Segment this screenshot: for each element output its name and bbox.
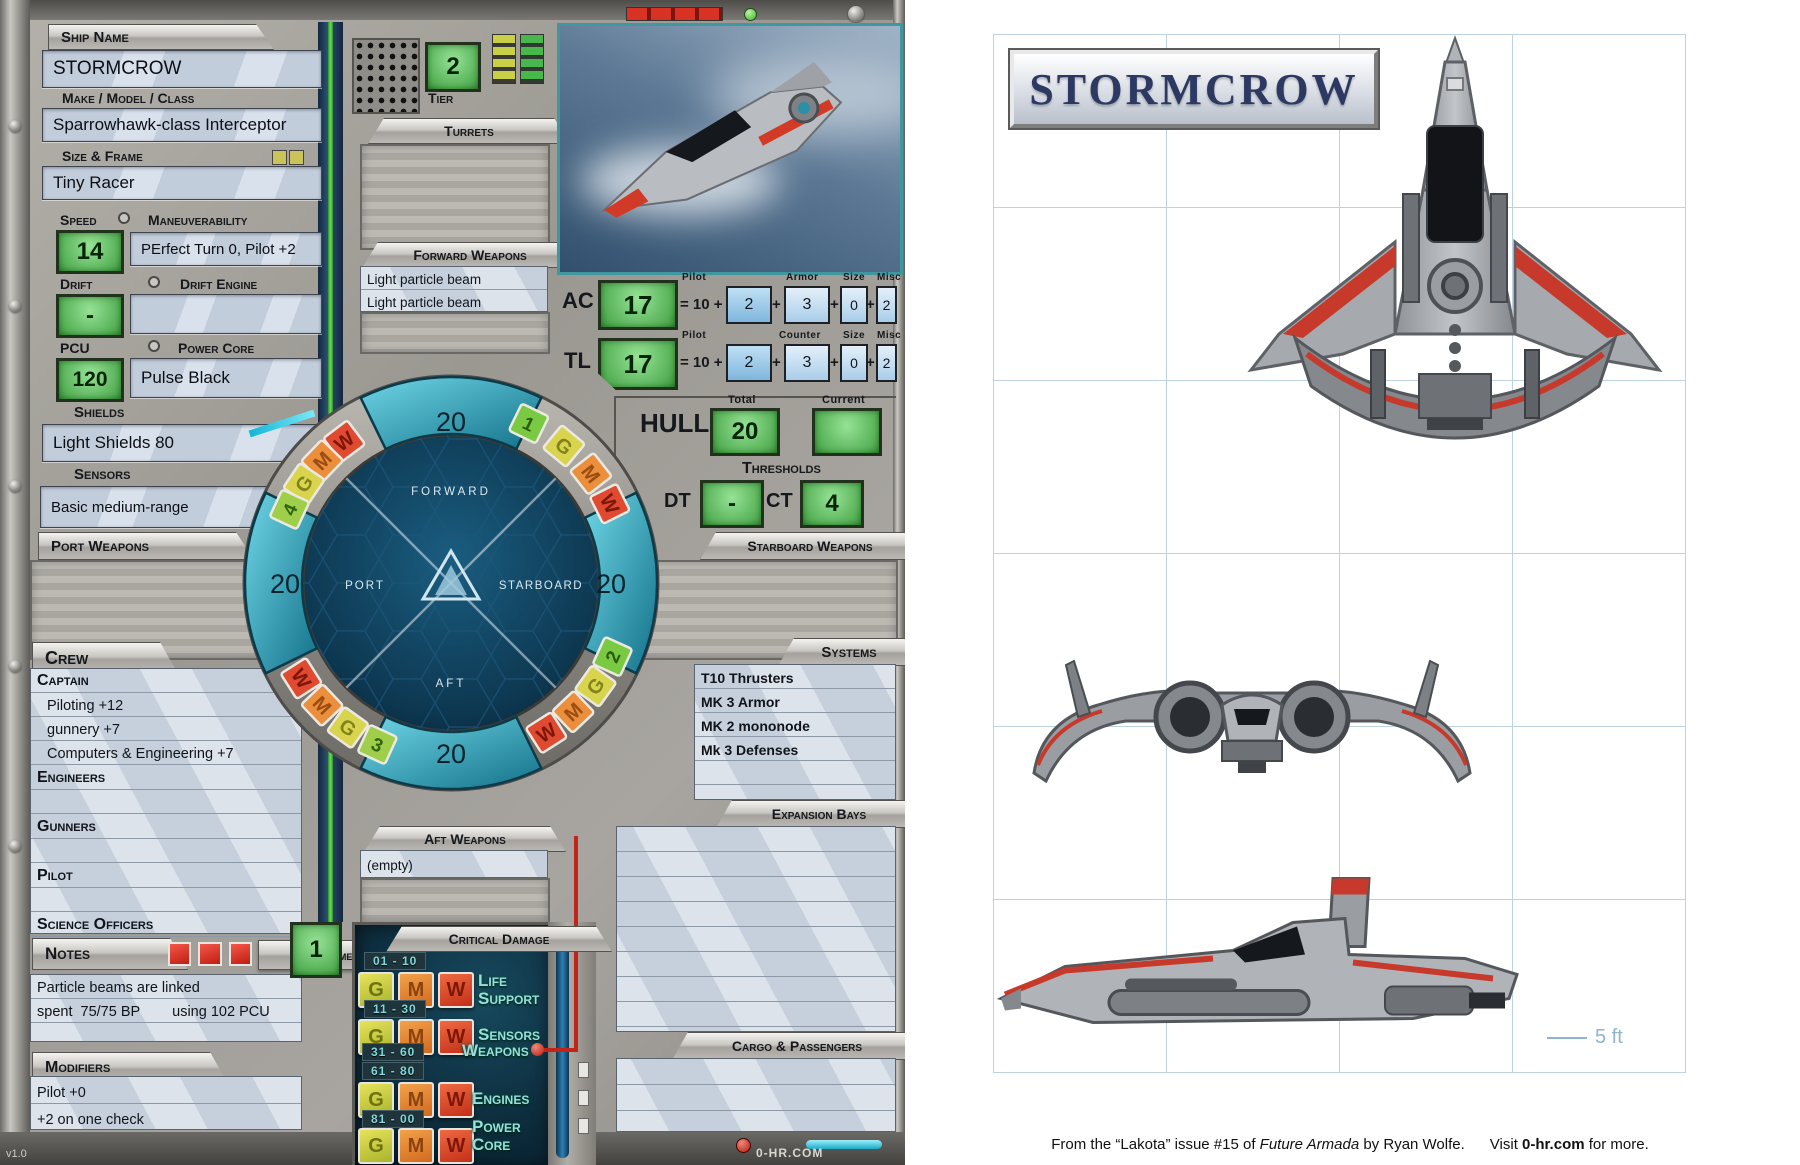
ac-misc-label: Misc (877, 272, 901, 283)
hull-total-box[interactable]: 20 (710, 408, 780, 456)
tl-pilot-label: Pilot (682, 330, 706, 341)
cargo-panel (616, 1058, 896, 1132)
notes-line[interactable]: spent 75/75 BP using 102 PCU (31, 999, 301, 1023)
m-damage-box[interactable]: M (398, 1128, 434, 1164)
drift-value-box[interactable]: - (56, 294, 124, 338)
bay-row[interactable] (617, 1002, 895, 1027)
crew-pilot-row[interactable]: Pilot (31, 863, 301, 888)
make-model-field[interactable]: Sparrowhawk-class Interceptor (42, 108, 322, 142)
ac-formula: = 10 + (680, 296, 723, 313)
footer-author: Ryan Wolfe. (1383, 1136, 1464, 1153)
aft-quadrant-label: AFT (436, 678, 467, 690)
blueprint-page: STORMCROW (905, 0, 1800, 1165)
drift-label: Drift (60, 276, 92, 292)
critical-range: 31 - 60 (362, 1043, 424, 1061)
system-entry[interactable]: MK 2 mononode (695, 713, 895, 737)
bay-row[interactable] (617, 877, 895, 902)
ac-label: AC (562, 288, 594, 314)
white-led-icon (578, 1062, 589, 1078)
maneuverability-field[interactable]: PErfect Turn 0, Pilot +2 (130, 232, 322, 266)
ac-value-box[interactable]: 17 (598, 280, 678, 330)
aft-weapons-panel[interactable] (360, 878, 550, 924)
forward-shield-value[interactable]: 20 (436, 407, 466, 437)
notes-status-squares (168, 942, 252, 966)
red-square-icon[interactable] (198, 942, 221, 966)
tl-misc-box[interactable]: 2 (876, 344, 897, 382)
aft-shield-value[interactable]: 20 (436, 739, 466, 769)
critical-power-core-chips: G M W (358, 1128, 474, 1164)
ship-side-view (993, 866, 1543, 1073)
critical-damage-header: Critical Damage (386, 926, 612, 952)
starboard-quadrant-label: STARBOARD (499, 580, 583, 592)
hull-current-box[interactable] (812, 408, 882, 456)
systems-panel: T10 Thrusters MK 3 Armor MK 2 mononode M… (694, 664, 896, 800)
white-led-icon (578, 1118, 589, 1134)
sensors-label: Sensors (74, 466, 130, 483)
critical-system-label: Life Support (478, 972, 548, 1008)
turrets-header: Turrets (368, 118, 570, 144)
notes-blank-line[interactable] (31, 1023, 301, 1046)
link-node-icon (118, 212, 130, 224)
ship-photo-render (578, 44, 878, 244)
ac-size-box[interactable]: 0 (840, 286, 868, 324)
make-model-label: Make / Model / Class (62, 90, 194, 106)
critical-range: 81 - 00 (362, 1110, 424, 1128)
ship-photo (557, 23, 903, 275)
drift-engine-field[interactable] (130, 294, 322, 334)
critical-system-label: Engines (472, 1090, 529, 1108)
critical-range: 11 - 30 (364, 1000, 426, 1018)
plus-sign: + (830, 296, 839, 313)
aft-weapon-entry[interactable]: (empty) (361, 851, 547, 875)
g-damage-box[interactable]: G (358, 1128, 394, 1164)
tl-counter-label: Counter (779, 330, 821, 341)
ship-record-sheet: 2 Tier Ship Name STORMCROW Make / Model … (0, 0, 905, 1165)
shields-label: Shields (74, 404, 124, 421)
speed-label: Speed (60, 212, 97, 228)
red-square-icon[interactable] (168, 942, 191, 966)
forward-weapons-header: Forward Weapons (362, 242, 578, 268)
cargo-row[interactable] (617, 1059, 895, 1085)
modifier-line[interactable]: +2 on one check (31, 1104, 301, 1130)
footer-series-title: Future Armada (1260, 1136, 1360, 1153)
modifier-line[interactable]: Pilot +0 (31, 1077, 301, 1104)
red-led-icon (736, 1138, 751, 1153)
expansion-bays-header: Expansion Bays (716, 800, 922, 828)
critical-range: 61 - 80 (362, 1062, 424, 1080)
indicator-slots-yellow (492, 34, 516, 84)
ship-top-view (1235, 34, 1675, 546)
pcu-value-box[interactable]: 120 (56, 358, 124, 402)
bolt-icon (9, 840, 21, 852)
bay-row[interactable] (617, 852, 895, 877)
round-button[interactable] (848, 6, 864, 22)
bolt-icon (9, 660, 21, 672)
tl-size-box[interactable]: 0 (840, 344, 868, 382)
ct-value-box[interactable]: 4 (800, 480, 864, 528)
ship-name-header: Ship Name (48, 24, 274, 50)
systems-header: Systems (778, 638, 920, 666)
ac-pilot-label: Pilot (682, 272, 706, 283)
arc-shield-diagram: 20 20 20 20 W M G 4 1 G M W W M G 3 W M … (211, 343, 691, 823)
tl-counter-box[interactable]: 3 (784, 344, 830, 382)
tl-size-label: Size (843, 330, 865, 341)
drift-engine-label: Drift Engine (180, 276, 257, 292)
notes-line[interactable]: Particle beams are linked (31, 975, 301, 999)
plus-sign: + (866, 354, 875, 371)
starboard-weapons-header: Starboard Weapons (700, 532, 920, 560)
port-shield-value[interactable]: 20 (270, 569, 300, 599)
bay-row[interactable] (617, 977, 895, 1002)
hull-current-label: Current (822, 394, 865, 406)
scale-label: 5 ft (1595, 1026, 1623, 1049)
size-frame-field[interactable]: Tiny Racer (42, 166, 322, 200)
cargo-header: Cargo & Passengers (672, 1032, 922, 1060)
weapons-pointer-dot (531, 1043, 544, 1056)
frame-pip-icon (289, 150, 304, 165)
port-quadrant-label: PORT (345, 580, 385, 592)
plus-sign: + (830, 354, 839, 371)
plus-sign: + (772, 354, 781, 371)
notes-header: Notes (32, 938, 188, 970)
critical-range: 01 - 10 (364, 952, 426, 970)
link-node-icon (148, 276, 160, 288)
weapons-connector-line (538, 1048, 578, 1052)
footer-site-link[interactable]: 0-hr.com (1522, 1136, 1585, 1153)
tier-value-box[interactable]: 2 (425, 42, 481, 92)
ac-armor-label: Armor (786, 272, 819, 283)
indicator-slots-green (520, 34, 544, 84)
thresholds-label: Thresholds (742, 460, 821, 478)
bay-row[interactable] (617, 902, 895, 927)
pcu-label: PCU (60, 340, 90, 356)
speed-value-box[interactable]: 14 (56, 230, 124, 274)
system-blank-entry[interactable] (695, 761, 895, 785)
brand-mark: 0-HR.COM (756, 1146, 823, 1160)
hull-total-label: Total (728, 394, 756, 406)
blue-pipe (556, 928, 569, 1158)
ac-misc-box[interactable]: 2 (876, 286, 897, 324)
crew-blank-row[interactable] (31, 888, 301, 912)
crew-blank-row[interactable] (31, 839, 301, 863)
ship-name-field[interactable]: STORMCROW (42, 50, 322, 88)
scale-tick-line (1547, 1037, 1587, 1039)
ac-pilot-box[interactable]: 2 (726, 286, 772, 324)
notes-panel: Particle beams are linked spent 75/75 BP… (30, 974, 302, 1042)
aft-weapons-header: Aft Weapons (364, 826, 566, 852)
cargo-row[interactable] (617, 1111, 895, 1136)
starboard-shield-value[interactable]: 20 (596, 569, 626, 599)
white-led-icon (578, 1090, 589, 1106)
system-entry[interactable]: Mk 3 Defenses (695, 737, 895, 761)
red-square-icon[interactable] (229, 942, 252, 966)
forward-weapons-list: Light particle beam Light particle beam (360, 266, 548, 312)
cargo-row[interactable] (617, 1085, 895, 1111)
critical-system-label: Weapons (462, 1042, 529, 1060)
green-led-icon (744, 8, 757, 21)
frame-pip-icon (272, 150, 287, 165)
bay-row[interactable] (617, 827, 895, 852)
ship-front-view (1022, 625, 1482, 821)
tier-label: Tier (428, 90, 453, 106)
forward-quadrant-label: FORWARD (411, 486, 491, 498)
critical-system-label: Power Core (472, 1118, 542, 1154)
footer-text: From the “Lakota” issue #15 of (1051, 1136, 1259, 1153)
page-footer: From the “Lakota” issue #15 of Future Ar… (950, 1136, 1750, 1153)
tl-misc-label: Misc (877, 330, 901, 341)
forward-weapon-entry[interactable]: Light particle beam (361, 267, 547, 290)
bolt-icon (9, 120, 21, 132)
screenshot-root: 2 Tier Ship Name STORMCROW Make / Model … (0, 0, 1800, 1165)
ac-size-label: Size (843, 272, 865, 283)
crew-science-row[interactable]: Science Officers (31, 912, 301, 937)
speaker-grill (352, 38, 420, 114)
pipe-column (548, 922, 596, 1165)
system-entry[interactable]: T10 Thrusters (695, 665, 895, 689)
aft-weapons-list: (empty) (360, 850, 548, 878)
sheet-top-frame (0, 0, 905, 20)
bolt-icon (9, 300, 21, 312)
w-damage-box[interactable]: W (438, 1128, 474, 1164)
bay-row[interactable] (617, 927, 895, 952)
sheet-left-rail (0, 0, 30, 1165)
expansion-bays-panel (616, 826, 896, 1032)
size-frame-label: Size & Frame (62, 148, 143, 164)
modifiers-panel: Pilot +0 +2 on one check (30, 1076, 302, 1130)
version-label: v1.0 (6, 1148, 27, 1160)
forward-weapon-entry[interactable]: Light particle beam (361, 290, 547, 312)
system-entry[interactable]: MK 3 Armor (695, 689, 895, 713)
w-damage-box[interactable]: W (438, 1082, 474, 1118)
ct-label: CT (766, 490, 793, 513)
bay-row[interactable] (617, 952, 895, 977)
turrets-panel[interactable] (360, 144, 550, 250)
status-bar-red (626, 7, 723, 21)
link-node-icon (148, 340, 160, 352)
tl-pilot-box[interactable]: 2 (726, 344, 772, 382)
plus-sign: + (772, 296, 781, 313)
bolt-icon (9, 480, 21, 492)
maneuverability-label: Maneuverability (148, 212, 247, 228)
complement-value-box[interactable]: 1 (290, 922, 342, 978)
plus-sign: + (866, 296, 875, 313)
w-damage-box[interactable]: W (438, 972, 474, 1008)
ac-armor-box[interactable]: 3 (784, 286, 830, 324)
dt-value-box[interactable]: - (700, 480, 764, 528)
